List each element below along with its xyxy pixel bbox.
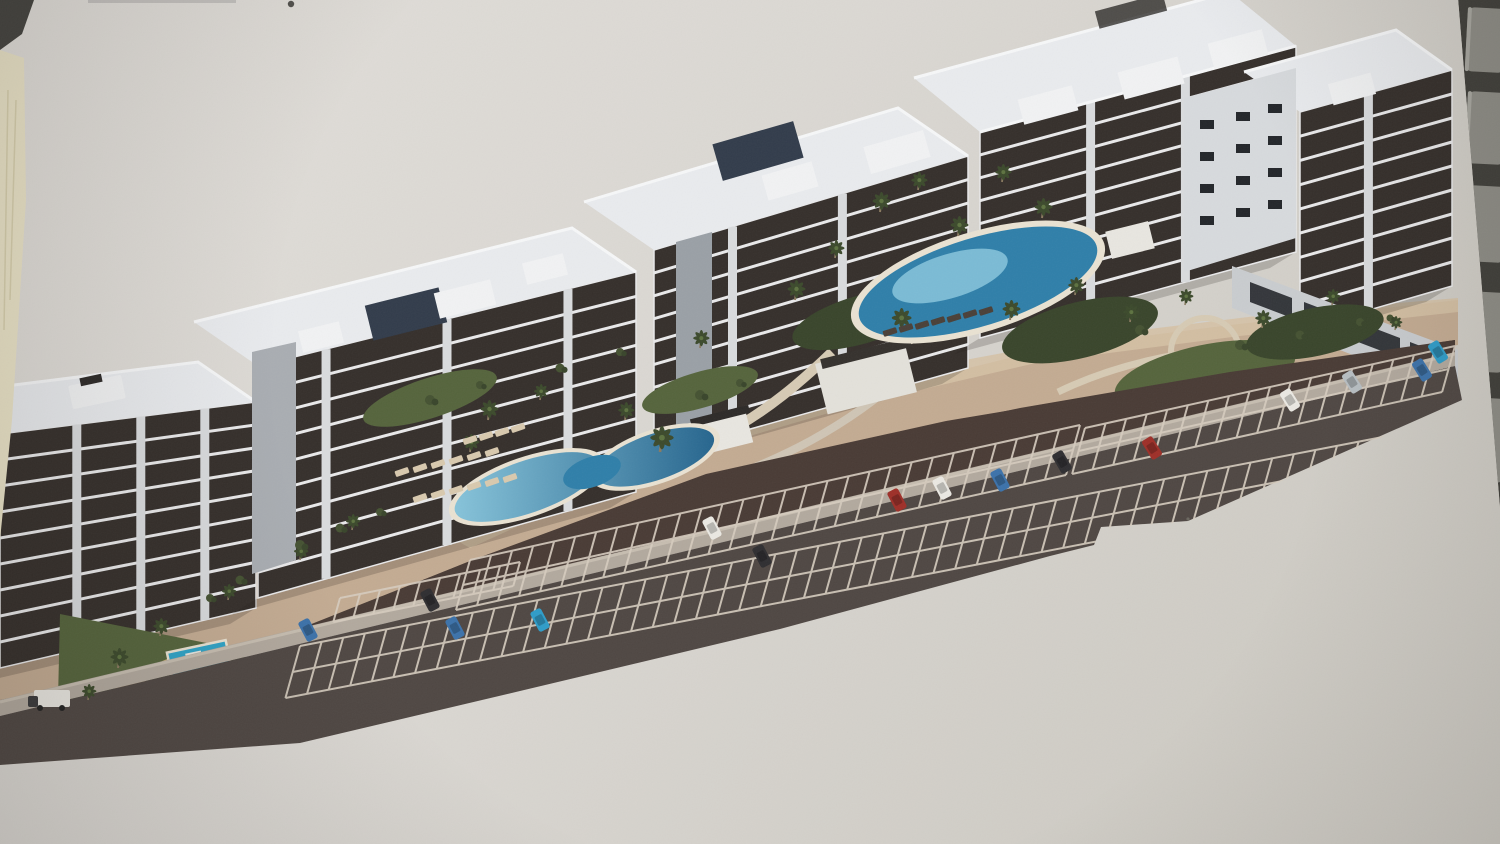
vignette xyxy=(0,0,1500,844)
rendering-scene xyxy=(0,0,1500,844)
photo-of-printed-rendering xyxy=(0,0,1500,844)
